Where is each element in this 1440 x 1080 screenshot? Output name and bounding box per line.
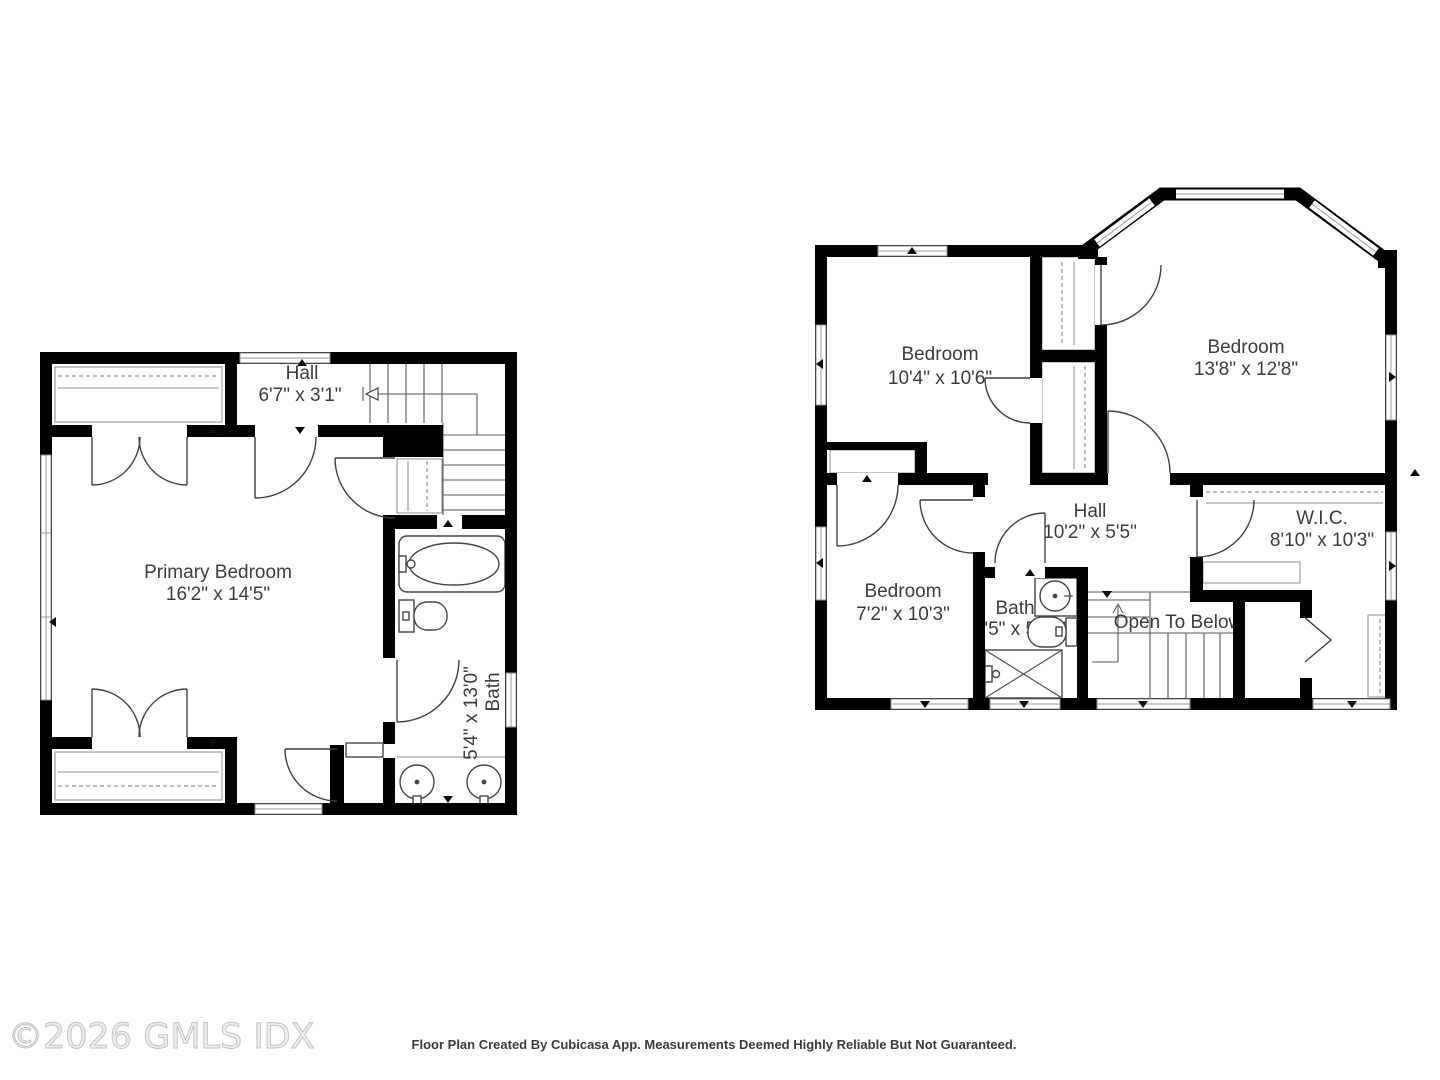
bathtub-icon [399,536,505,592]
hall-label: Hall [286,363,319,384]
watermark-text: ©2026 GMLS IDX [8,1017,315,1057]
hall2-label: Hall [1074,501,1107,522]
closet-column [1042,257,1095,473]
closet-bedroom3 [830,450,915,473]
footer: ©2026 GMLS IDX Floor Plan Created By Cub… [8,1017,1016,1057]
wic-dims: 8'10" x 10'3" [1270,530,1374,551]
disclaimer-text: Floor Plan Created By Cubicasa App. Meas… [412,1037,1017,1052]
primary-bedroom-label: Primary Bedroom [144,562,292,583]
bedroom-small-label: Bedroom [901,344,978,365]
toilet-icon [399,600,447,632]
sink-icon [1035,578,1077,616]
bath2-label: Bath [995,598,1034,619]
closet-top-left [55,367,222,422]
bedroom-third-label: Bedroom [864,581,941,602]
bath-dims: 5'4" x 13'0" [461,666,482,760]
closet-bottom-left [55,752,222,800]
hall2-dims: 10'2" x 5'5" [1043,522,1137,543]
bay-window [1097,194,1376,252]
toilet-icon [1028,617,1077,647]
open-to-below-label: Open To Below [1114,612,1243,633]
primary-bedroom-dims: 16'2" x 14'5" [166,584,270,605]
bedroom-third-dims: 7'2" x 10'3" [856,604,950,625]
closet-small [397,459,442,513]
floor-plan-page: Hall 6'7" x 3'1" Primary Bedroom 16'2" x… [0,0,1440,1080]
left-floor-plan: Hall 6'7" x 3'1" Primary Bedroom 16'2" x… [40,352,517,815]
bedroom-small-dims: 10'4" x 10'6" [888,368,992,389]
shower-icon [985,650,1062,698]
staircase-icon [1088,592,1233,698]
bath-label: Bath [483,672,504,711]
bedroom-large-label: Bedroom [1207,337,1284,358]
bedroom-large-dims: 13'8" x 12'8" [1194,359,1298,380]
hall-dims: 6'7" x 3'1" [258,385,341,406]
wic-label: W.I.C. [1296,508,1348,529]
right-floor-plan: 4'5" x 5'11" Open To Below [815,194,1420,710]
floor-plan-drawing: Hall 6'7" x 3'1" Primary Bedroom 16'2" x… [0,0,1440,1080]
